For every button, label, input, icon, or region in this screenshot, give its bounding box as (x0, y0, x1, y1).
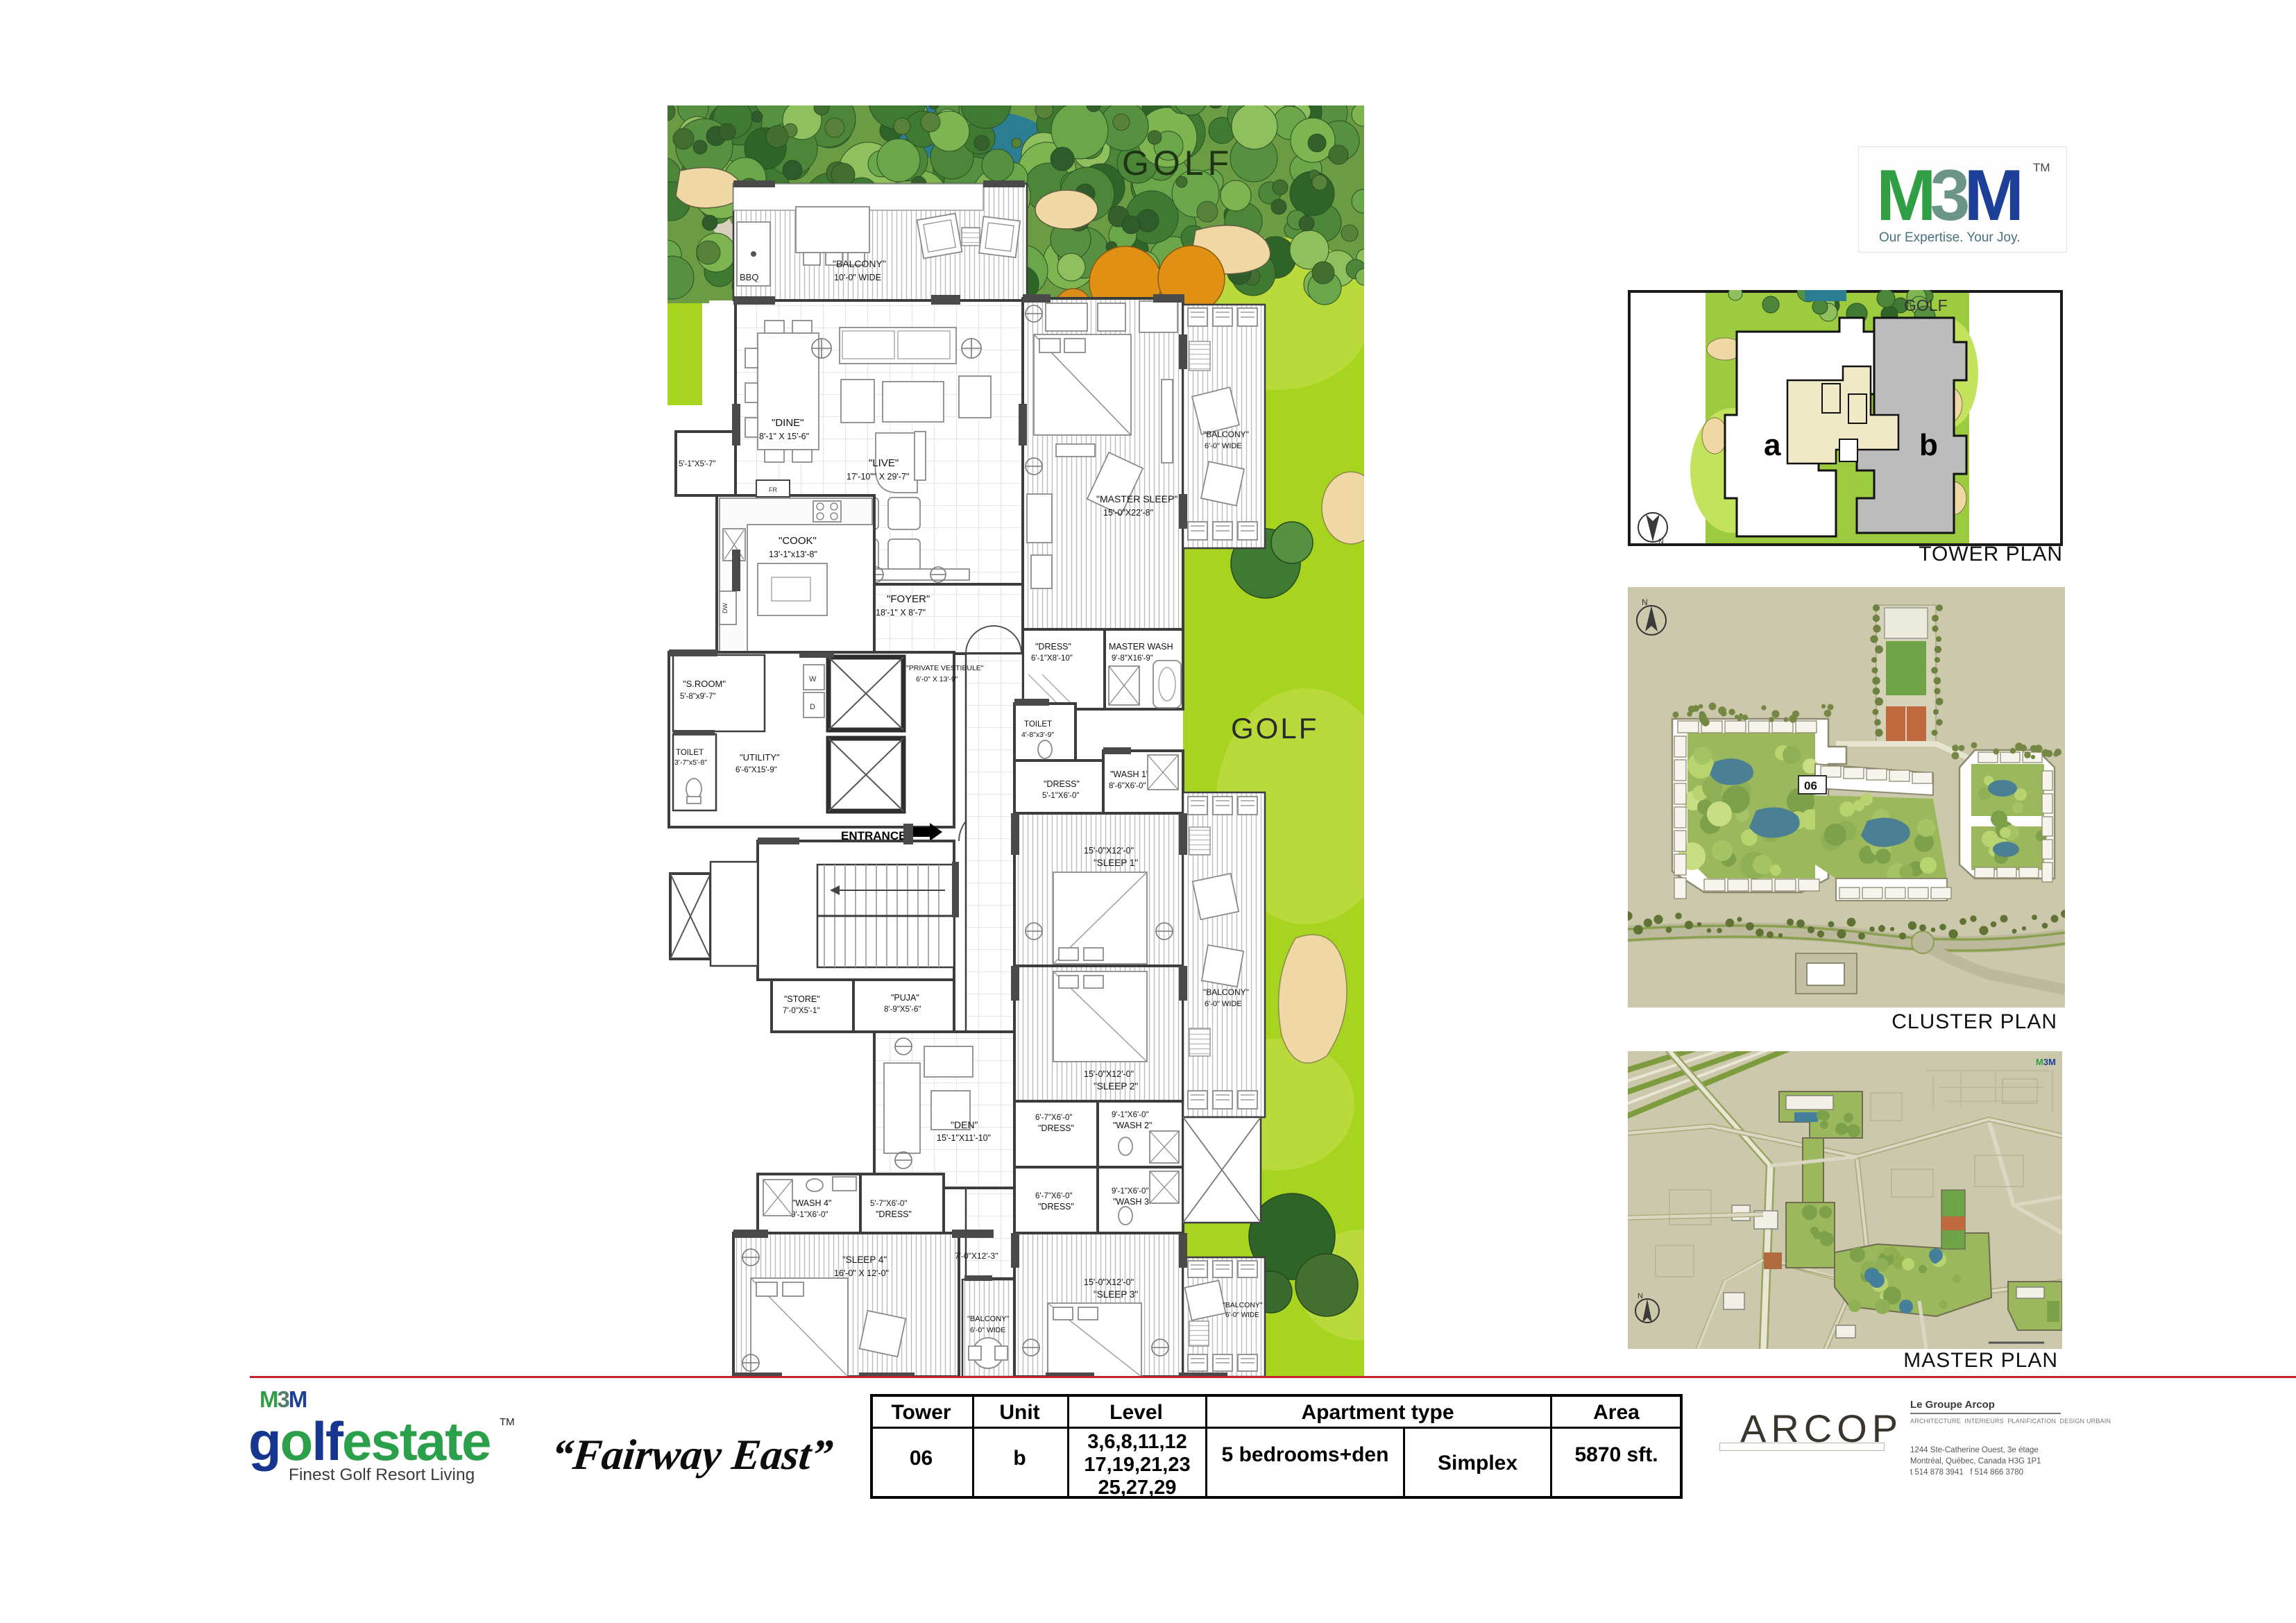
svg-text:DW: DW (722, 603, 729, 613)
svg-text:5'-1"X5'-7": 5'-1"X5'-7" (679, 460, 715, 468)
svg-text:8'-6"X6'-0": 8'-6"X6'-0" (1109, 782, 1146, 790)
svg-text:"DRESS": "DRESS" (1044, 779, 1080, 789)
svg-text:"DRESS": "DRESS" (1038, 1202, 1074, 1212)
svg-text:4'-8"x3'-9": 4'-8"x3'-9" (1021, 731, 1054, 739)
svg-text:6'-1"X8'-10": 6'-1"X8'-10" (1031, 654, 1073, 663)
svg-text:7'-0"X5'-1": 7'-0"X5'-1" (783, 1007, 819, 1015)
svg-text:GOLF: GOLF (1904, 296, 1948, 314)
svg-text:15'-0"X12'-0": 15'-0"X12'-0" (1084, 846, 1134, 856)
svg-text:Our Expertise. Your Joy.: Our Expertise. Your Joy. (1879, 230, 2020, 245)
svg-text:15'-0"X22'-8": 15'-0"X22'-8" (1103, 508, 1153, 518)
svg-text:N: N (1642, 597, 1648, 607)
svg-text:15'-1"X11'-10": 15'-1"X11'-10" (937, 1133, 991, 1143)
svg-text:5'-1"X6'-0": 5'-1"X6'-0" (1042, 792, 1079, 800)
svg-text:GOLF: GOLF (1231, 712, 1318, 745)
svg-text:M3M: M3M (1876, 155, 2019, 236)
svg-text:W: W (809, 675, 817, 683)
svg-text:Finest Golf Resort Living: Finest Golf Resort Living (289, 1465, 475, 1484)
svg-text:9'-1"X6'-0": 9'-1"X6'-0" (791, 1211, 828, 1219)
svg-text:FR: FR (769, 486, 777, 493)
svg-text:"BALCONY": "BALCONY" (1223, 1301, 1263, 1309)
svg-text:"FOYER": "FOYER" (887, 593, 930, 605)
svg-text:"PRIVATE VESTIBULE": "PRIVATE VESTIBULE" (906, 664, 984, 672)
svg-text:7'-0"X12'-3": 7'-0"X12'-3" (955, 1251, 998, 1261)
svg-text:6'-0" X 13'-9": 6'-0" X 13'-9" (916, 675, 958, 683)
svg-text:b: b (1919, 428, 1938, 462)
svg-text:"STORE": "STORE" (784, 994, 820, 1004)
svg-text:"PUJA": "PUJA" (891, 993, 919, 1003)
svg-text:"SLEEP 2": "SLEEP 2" (1094, 1081, 1138, 1091)
svg-text:"BALCONY": "BALCONY" (833, 258, 886, 269)
svg-text:6'-0" WIDE: 6'-0" WIDE (1205, 442, 1242, 450)
svg-text:6'-6"X15'-9": 6'-6"X15'-9" (735, 766, 777, 774)
svg-text:MASTER WASH: MASTER WASH (1109, 642, 1173, 652)
svg-text:M3M: M3M (260, 1386, 307, 1412)
svg-text:"DRESS": "DRESS" (1035, 642, 1071, 652)
svg-text:"BALCONY": "BALCONY" (1203, 430, 1249, 439)
svg-text:"WASH 4": "WASH 4" (792, 1198, 831, 1208)
svg-text:"LIVE": "LIVE" (869, 457, 899, 469)
svg-text:"DRESS": "DRESS" (876, 1209, 912, 1219)
svg-text:15'-0"X12'-0": 15'-0"X12'-0" (1084, 1277, 1134, 1287)
svg-text:"BALCONY": "BALCONY" (1203, 987, 1249, 997)
svg-text:17'-10"" X 29'-7": 17'-10"" X 29'-7" (847, 472, 909, 482)
svg-text:M3M: M3M (2036, 1057, 2056, 1067)
svg-text:GOLF: GOLF (1122, 144, 1233, 182)
svg-text:"COOK": "COOK" (779, 535, 817, 547)
svg-text:"DINE": "DINE" (772, 417, 804, 429)
svg-text:16'-0" X 12'-0": 16'-0" X 12'-0" (834, 1268, 889, 1278)
svg-text:"MASTER SLEEP": "MASTER SLEEP" (1096, 493, 1177, 504)
svg-text:10'-0" WIDE: 10'-0" WIDE (834, 273, 881, 282)
svg-text:N: N (1658, 538, 1664, 546)
svg-text:8'-9"X5'-6": 8'-9"X5'-6" (884, 1005, 921, 1014)
svg-text:18'-1" X 8'-7": 18'-1" X 8'-7" (876, 608, 926, 618)
svg-text:"SLEEP 3": "SLEEP 3" (1094, 1289, 1138, 1300)
svg-text:TM: TM (500, 1416, 515, 1428)
svg-text:"DRESS": "DRESS" (1038, 1123, 1074, 1133)
svg-text:"S.ROOM": "S.ROOM" (683, 679, 726, 689)
svg-text:9'-1"X6'-0": 9'-1"X6'-0" (1112, 1187, 1148, 1196)
svg-text:6'-0" WIDE: 6'-0" WIDE (1205, 1000, 1242, 1008)
svg-text:6'-0" WIDE: 6'-0" WIDE (970, 1326, 1005, 1334)
svg-text:9'-8"X16'-9": 9'-8"X16'-9" (1112, 654, 1153, 663)
svg-text:06: 06 (1804, 779, 1817, 792)
svg-text:BBQ: BBQ (740, 272, 758, 282)
svg-text:"WASH 3": "WASH 3" (1113, 1197, 1152, 1207)
svg-text:D: D (810, 703, 815, 711)
svg-text:6'-0" WIDE: 6'-0" WIDE (1225, 1311, 1259, 1319)
svg-text:N: N (1638, 1292, 1643, 1300)
svg-text:"SLEEP 4": "SLEEP 4" (842, 1255, 887, 1265)
svg-text:"UTILITY": "UTILITY" (740, 752, 780, 763)
svg-text:6'-7"X6'-0": 6'-7"X6'-0" (1035, 1114, 1072, 1122)
svg-text:15'-0"X12'-0": 15'-0"X12'-0" (1084, 1069, 1134, 1079)
svg-text:"WASH 1": "WASH 1" (1110, 770, 1149, 779)
svg-text:9'-1"X6'-0": 9'-1"X6'-0" (1112, 1111, 1148, 1119)
svg-text:TM: TM (2033, 161, 2050, 174)
svg-text:TOILET: TOILET (1024, 720, 1052, 729)
svg-text:"SLEEP 1": "SLEEP 1" (1094, 858, 1138, 868)
svg-text:6'-7"X6'-0": 6'-7"X6'-0" (1035, 1192, 1072, 1200)
svg-text:golfestate: golfestate (248, 1411, 490, 1472)
svg-text:5'-8"x9'-7": 5'-8"x9'-7" (680, 692, 716, 701)
svg-text:"DEN": "DEN" (951, 1119, 978, 1130)
svg-text:13'-1"x13'-8": 13'-1"x13'-8" (769, 550, 817, 559)
svg-text:3'-7"x5'-8": 3'-7"x5'-8" (674, 758, 707, 767)
svg-text:8'-1" X 15'-6": 8'-1" X 15'-6" (759, 432, 809, 441)
svg-text:a: a (1764, 428, 1781, 462)
svg-text:"BALCONY": "BALCONY" (967, 1315, 1009, 1323)
svg-text:5'-7"X6'-0": 5'-7"X6'-0" (870, 1200, 907, 1208)
svg-text:TOILET: TOILET (676, 749, 704, 757)
svg-text:"WASH 2": "WASH 2" (1113, 1121, 1152, 1130)
